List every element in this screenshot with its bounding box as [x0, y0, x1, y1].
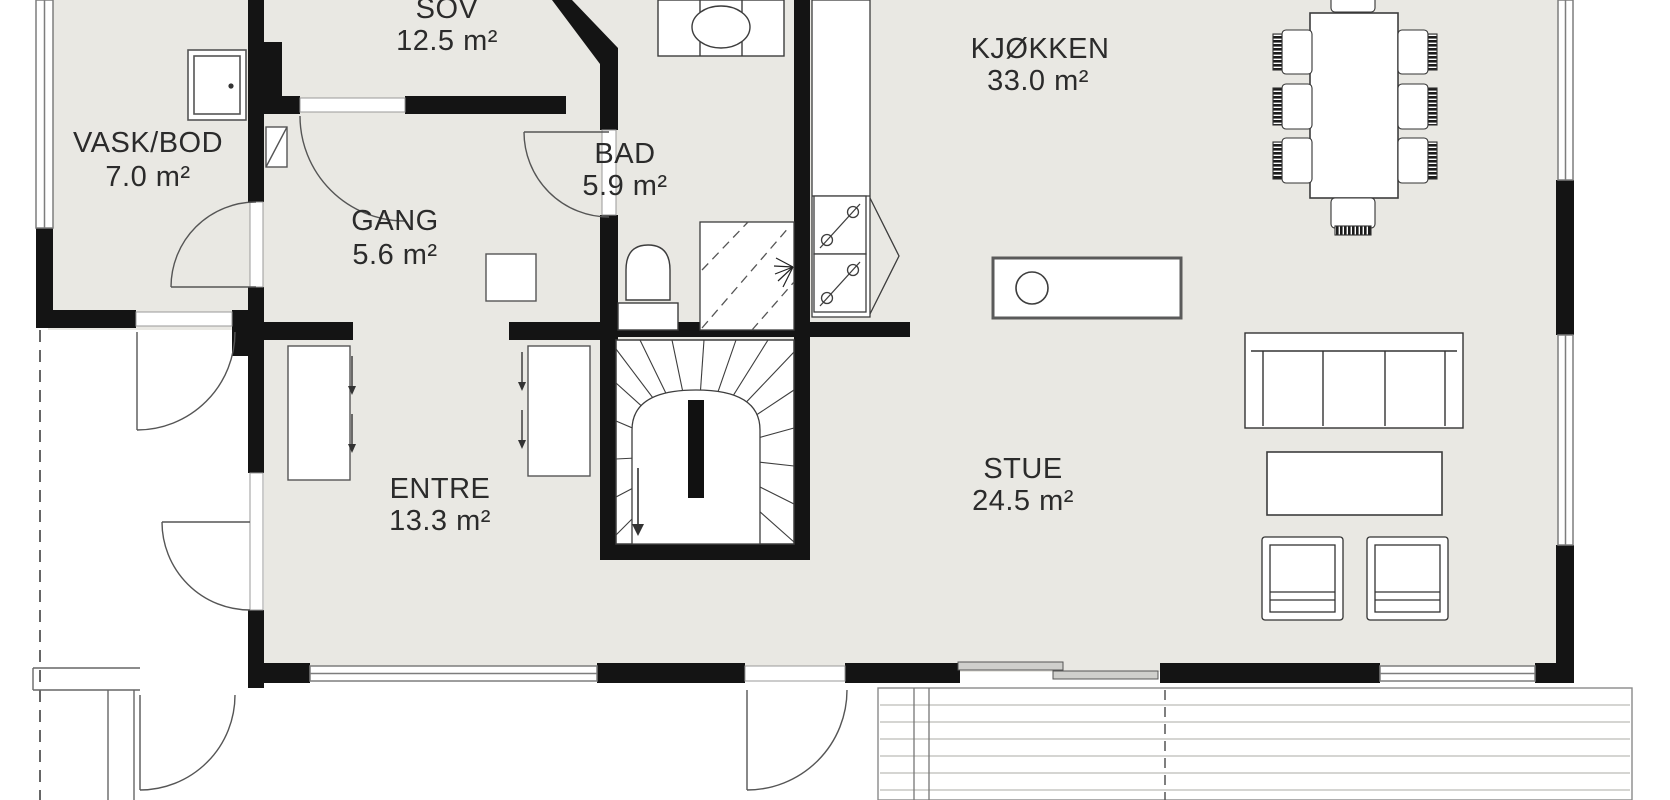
room-label-stue: STUE 24.5 m²: [972, 453, 1074, 517]
svg-text:5.9 m²: 5.9 m²: [582, 170, 667, 202]
shower-corner: [700, 222, 794, 330]
svg-text:SOV: SOV: [416, 0, 479, 25]
kitchen-island: [993, 258, 1181, 318]
door-swing-entre-side: [162, 522, 250, 610]
svg-text:STUE: STUE: [983, 453, 1062, 485]
dining-chairs-right: [1398, 30, 1437, 183]
deck-planks: [878, 688, 1632, 800]
svg-text:KJØKKEN: KJØKKEN: [971, 33, 1110, 65]
svg-text:5.6 m²: 5.6 m²: [352, 239, 437, 271]
cooktop-burners: [814, 196, 866, 312]
outdoor-left: [33, 330, 140, 800]
svg-text:13.3 m²: 13.3 m²: [389, 505, 491, 537]
door-swing-front-entrance: [747, 690, 847, 790]
svg-text:12.5 m²: 12.5 m²: [396, 25, 498, 57]
svg-text:BAD: BAD: [594, 138, 655, 170]
door-swing-vaskbod-exterior: [137, 332, 235, 430]
dining-chairs-left: [1273, 30, 1312, 183]
svg-text:7.0 m²: 7.0 m²: [105, 161, 190, 193]
floorplan-canvas: SOV 12.5 m² VASK/BOD 7.0 m² GANG 5.6 m² …: [0, 0, 1670, 800]
svg-text:24.5 m²: 24.5 m²: [972, 485, 1074, 517]
vanity-basin: [658, 0, 784, 56]
room-label-kjokken: KJØKKEN 33.0 m²: [971, 33, 1110, 97]
coffee-table: [1267, 452, 1442, 515]
stairs-winder: [616, 340, 794, 544]
vent-shaft: [266, 127, 287, 167]
dining-chair-top: [1331, 0, 1375, 12]
svg-text:VASK/BOD: VASK/BOD: [73, 127, 223, 159]
room-label-entre: ENTRE 13.3 m²: [389, 473, 491, 537]
dining-table: [1310, 13, 1398, 198]
svg-text:GANG: GANG: [351, 205, 438, 237]
svg-text:ENTRE: ENTRE: [390, 473, 491, 505]
armchair-right: [1367, 537, 1448, 620]
floorplan-drawing: SOV 12.5 m² VASK/BOD 7.0 m² GANG 5.6 m² …: [0, 0, 1670, 800]
appliance-cabinet: [188, 50, 246, 120]
armchair-left: [1262, 537, 1343, 620]
svg-text:33.0 m²: 33.0 m²: [987, 65, 1089, 97]
round-sink: [1016, 272, 1048, 304]
door-swing-outdoor-gate: [140, 695, 235, 790]
gang-cabinet: [486, 254, 536, 301]
sofa: [1245, 333, 1463, 428]
room-label-bad: BAD 5.9 m²: [582, 138, 667, 202]
outdoor-rail: [33, 668, 140, 800]
dining-chair-bottom: [1331, 198, 1375, 235]
